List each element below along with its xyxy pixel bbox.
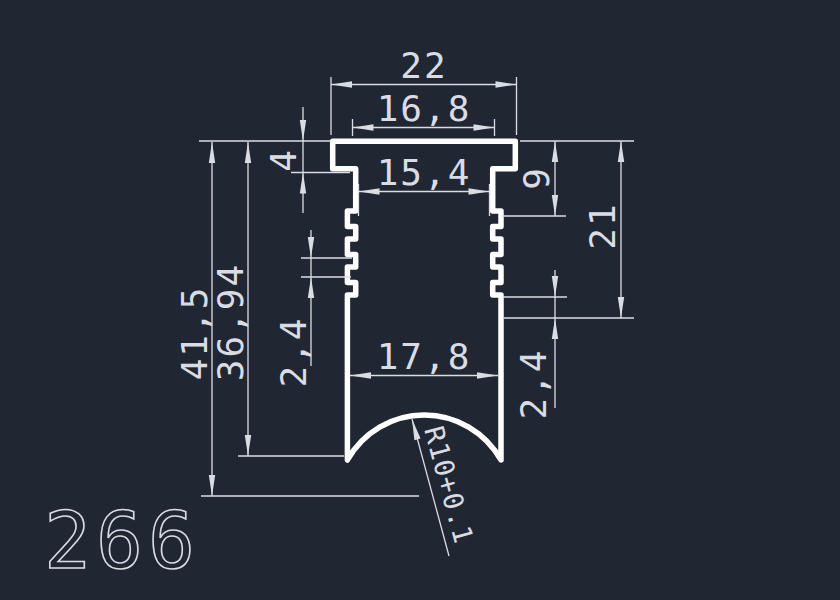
dim-total-height: 41,5: [174, 286, 215, 381]
dim-flange-thickness: 4: [263, 148, 304, 172]
dim-flange-width: 22: [400, 45, 447, 86]
drawing-number: 266: [44, 496, 200, 586]
dim-top-to-ribs: 9: [516, 166, 557, 190]
dim-rib-zone-height: 21: [582, 202, 623, 249]
dim-neck-outer-width: 16,8: [377, 88, 472, 129]
title-block: 266: [44, 496, 200, 586]
dim-last-rib-height: 2,4: [513, 348, 554, 419]
dim-body-height: 36,94: [210, 263, 251, 381]
dim-rib-pitch-left: 2,4: [273, 316, 314, 387]
dim-neck-inner-width: 15,4: [377, 152, 472, 193]
technical-drawing: 22 16,8 15,4 17,8 4 2,4 41,5 36,94 9 21 …: [0, 0, 840, 600]
radius-leader-label: R10+0.1: [418, 423, 480, 548]
dim-bottom-inner-width: 17,8: [377, 336, 472, 377]
cad-canvas: 22 16,8 15,4 17,8 4 2,4 41,5 36,94 9 21 …: [0, 0, 840, 600]
